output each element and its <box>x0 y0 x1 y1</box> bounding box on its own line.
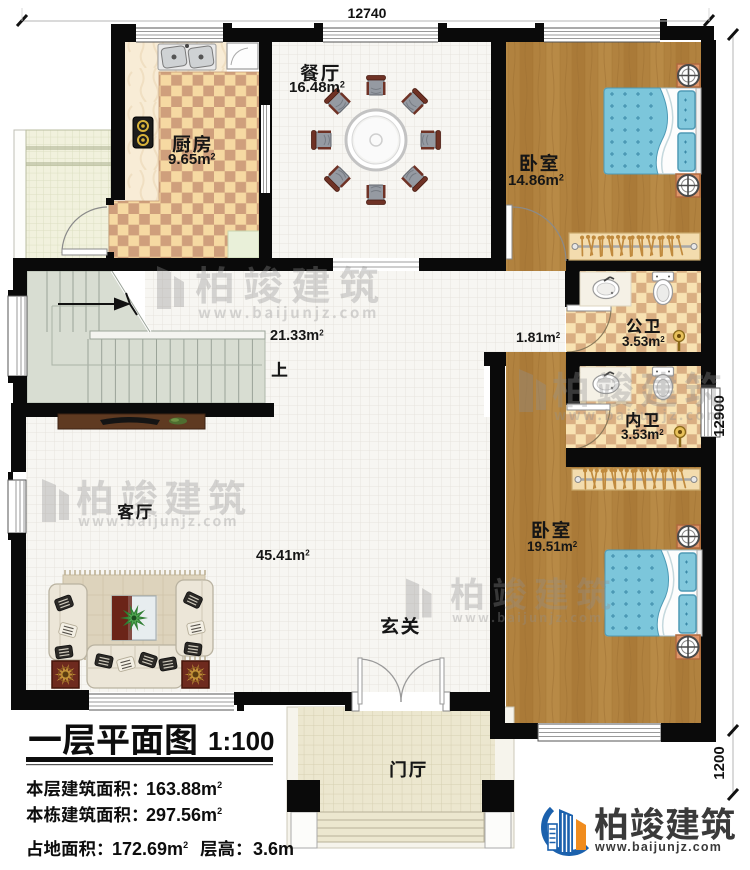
svg-text:172.69m2: 172.69m2 <box>112 839 188 859</box>
svg-text:3.53m2: 3.53m2 <box>621 427 664 442</box>
svg-text:1:100: 1:100 <box>208 726 275 756</box>
svg-text:9.65m2: 9.65m2 <box>168 151 216 168</box>
svg-text:1.81m2: 1.81m2 <box>516 329 561 345</box>
svg-text:45.41m2: 45.41m2 <box>256 548 310 564</box>
svg-text:14.86m2: 14.86m2 <box>508 172 564 189</box>
svg-text:12740: 12740 <box>348 5 387 21</box>
svg-text:163.88m2: 163.88m2 <box>146 779 222 799</box>
svg-text:www.baijunjz.com: www.baijunjz.com <box>594 840 722 854</box>
svg-text:16.48m2: 16.48m2 <box>289 79 345 96</box>
svg-text:297.56m2: 297.56m2 <box>146 805 222 825</box>
svg-text:3.6m: 3.6m <box>253 839 294 859</box>
svg-text:21.33m2: 21.33m2 <box>270 328 324 344</box>
svg-text:19.51m2: 19.51m2 <box>527 539 578 554</box>
svg-text:3.53m2: 3.53m2 <box>622 334 665 349</box>
svg-text:1200: 1200 <box>711 746 728 779</box>
